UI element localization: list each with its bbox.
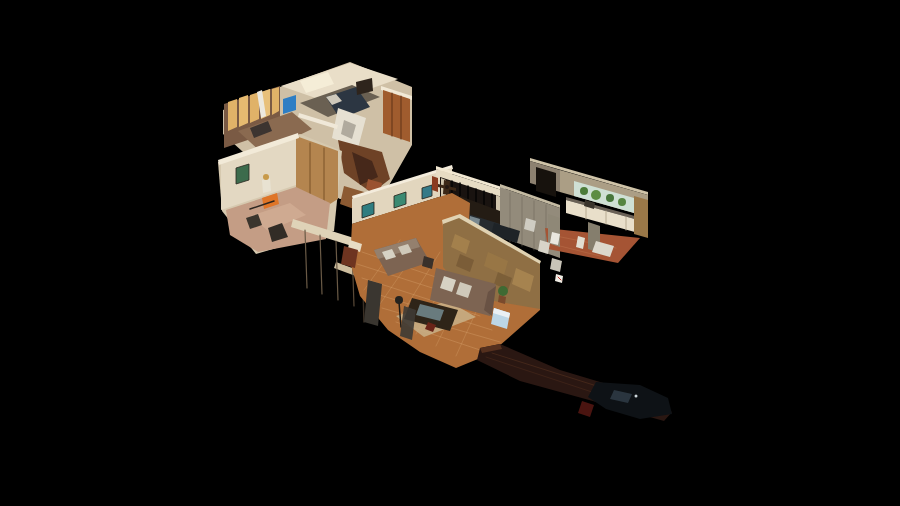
window-pane-3 bbox=[250, 92, 259, 123]
side-cabinet-wood bbox=[341, 246, 358, 268]
green-picture bbox=[236, 164, 249, 184]
plant-3 bbox=[606, 194, 614, 202]
window-pane-5 bbox=[272, 87, 279, 115]
railing-post-2 bbox=[320, 235, 322, 294]
travertine-pillar bbox=[634, 196, 648, 238]
pedestal-bowl bbox=[263, 174, 269, 180]
living-plant bbox=[498, 286, 508, 296]
deck-mass-speck bbox=[635, 395, 638, 398]
pedestal bbox=[262, 178, 271, 193]
appliance-3 bbox=[550, 258, 562, 272]
dollhouse-viewer[interactable] bbox=[0, 0, 900, 506]
deck-maroon-accent bbox=[578, 401, 594, 417]
dollhouse-model[interactable] bbox=[0, 0, 900, 506]
plant-1 bbox=[580, 187, 588, 195]
window-pane-2 bbox=[239, 95, 248, 127]
plant-4 bbox=[618, 198, 626, 206]
railing-post-3 bbox=[336, 241, 338, 300]
ceiling-fan-hub bbox=[445, 185, 449, 189]
window-pane-1 bbox=[228, 99, 237, 131]
red-vase-cabinet bbox=[432, 176, 438, 192]
floor-fan-head bbox=[395, 296, 403, 304]
brown-doors bbox=[383, 90, 410, 142]
deck-dark-mass bbox=[588, 382, 672, 419]
plant-2 bbox=[591, 190, 601, 200]
